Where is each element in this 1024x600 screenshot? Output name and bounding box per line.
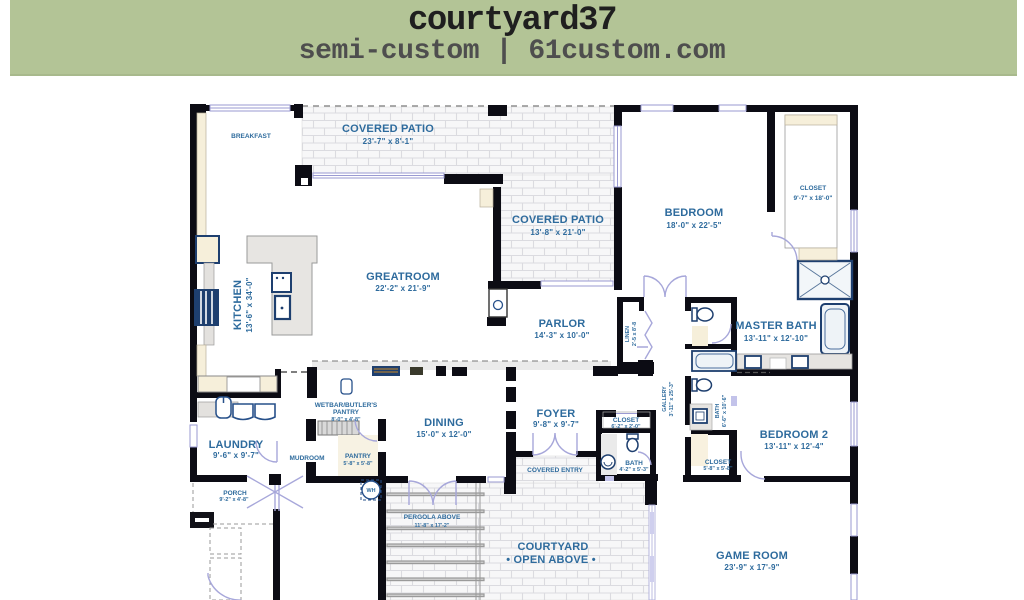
svg-text:FOYER: FOYER xyxy=(537,408,576,420)
svg-text:LINEN: LINEN xyxy=(625,326,631,342)
svg-text:9'-8" x 9'-7": 9'-8" x 9'-7" xyxy=(533,420,579,429)
svg-text:BATH: BATH xyxy=(715,404,721,419)
svg-text:11'-8" x 17'-2": 11'-8" x 17'-2" xyxy=(415,523,450,529)
svg-text:LAUNDRY: LAUNDRY xyxy=(209,439,264,451)
svg-text:13'-11" x 12'-10": 13'-11" x 12'-10" xyxy=(744,334,808,343)
svg-text:14'-3" x 10'-0": 14'-3" x 10'-0" xyxy=(534,331,589,340)
svg-text:MUDROOM: MUDROOM xyxy=(289,455,324,462)
svg-text:COVERED PATIO: COVERED PATIO xyxy=(342,123,434,135)
svg-text:6'-2" x 2'-0": 6'-2" x 2'-0" xyxy=(611,424,641,430)
svg-text:CLOSET: CLOSET xyxy=(613,417,639,424)
svg-text:3'-11" x 25'-3": 3'-11" x 25'-3" xyxy=(669,381,675,416)
svg-text:COVERED PATIO: COVERED PATIO xyxy=(512,214,604,226)
svg-text:• OPEN ABOVE •: • OPEN ABOVE • xyxy=(506,554,596,566)
svg-text:semi-custom | 61custom.com: semi-custom | 61custom.com xyxy=(299,36,725,67)
svg-text:5'-8" x 5'-8": 5'-8" x 5'-8" xyxy=(343,461,373,467)
svg-text:13'-6" x 34'-0": 13'-6" x 34'-0" xyxy=(245,277,254,332)
svg-text:GREATROOM: GREATROOM xyxy=(366,271,440,283)
svg-text:PORCH: PORCH xyxy=(223,490,247,497)
svg-text:23'-9" x 17'-9": 23'-9" x 17'-9" xyxy=(724,563,779,572)
svg-text:GAME ROOM: GAME ROOM xyxy=(716,550,788,562)
svg-text:courtyard37: courtyard37 xyxy=(408,2,616,40)
svg-text:BREAKFAST: BREAKFAST xyxy=(231,133,271,140)
svg-text:8'-0" x 4'-8": 8'-0" x 4'-8" xyxy=(331,417,361,423)
svg-text:DINING: DINING xyxy=(424,417,464,429)
svg-text:BEDROOM: BEDROOM xyxy=(665,207,724,219)
svg-text:22'-2" x 21'-9": 22'-2" x 21'-9" xyxy=(375,284,430,293)
svg-text:9'-7" x 18'-0": 9'-7" x 18'-0" xyxy=(794,195,833,202)
svg-text:6'-6" x 10'-6": 6'-6" x 10'-6" xyxy=(722,394,728,427)
svg-text:15'-0" x 12'-0": 15'-0" x 12'-0" xyxy=(416,430,471,439)
svg-text:MASTER BATH: MASTER BATH xyxy=(735,320,816,332)
svg-text:9'-6" x 9'-7": 9'-6" x 9'-7" xyxy=(213,451,259,460)
svg-text:13'-8" x 21'-0": 13'-8" x 21'-0" xyxy=(530,228,585,237)
svg-text:KITCHEN: KITCHEN xyxy=(232,280,244,330)
svg-text:18'-0" x 22'-5": 18'-0" x 22'-5" xyxy=(666,221,721,230)
svg-text:BEDROOM 2: BEDROOM 2 xyxy=(760,429,828,441)
svg-text:WH: WH xyxy=(367,488,376,494)
svg-text:5'-8" x 5'-8": 5'-8" x 5'-8" xyxy=(703,466,733,472)
svg-text:GALLERY: GALLERY xyxy=(662,386,668,412)
svg-text:PARLOR: PARLOR xyxy=(539,318,586,330)
svg-text:2'-5 x 8'-8: 2'-5 x 8'-8 xyxy=(632,322,638,346)
svg-text:23'-7" x 8'-1": 23'-7" x 8'-1" xyxy=(363,137,414,146)
svg-text:9'-2" x 4'-8": 9'-2" x 4'-8" xyxy=(219,497,249,503)
svg-text:CLOSET: CLOSET xyxy=(800,185,826,192)
svg-text:PANTRY: PANTRY xyxy=(345,453,372,460)
svg-text:13'-11" x 12'-4": 13'-11" x 12'-4" xyxy=(764,442,824,451)
svg-text:WETBAR/BUTLER'S: WETBAR/BUTLER'S xyxy=(315,402,378,409)
svg-text:COVERED ENTRY: COVERED ENTRY xyxy=(527,467,583,474)
svg-text:BATH: BATH xyxy=(625,460,643,467)
svg-text:PANTRY: PANTRY xyxy=(333,409,360,416)
svg-text:COURTYARD: COURTYARD xyxy=(517,541,588,553)
svg-text:4'-2" x 5'-3": 4'-2" x 5'-3" xyxy=(619,467,649,473)
svg-text:PERGOLA ABOVE: PERGOLA ABOVE xyxy=(404,514,461,521)
svg-text:CLOSET: CLOSET xyxy=(705,459,731,466)
